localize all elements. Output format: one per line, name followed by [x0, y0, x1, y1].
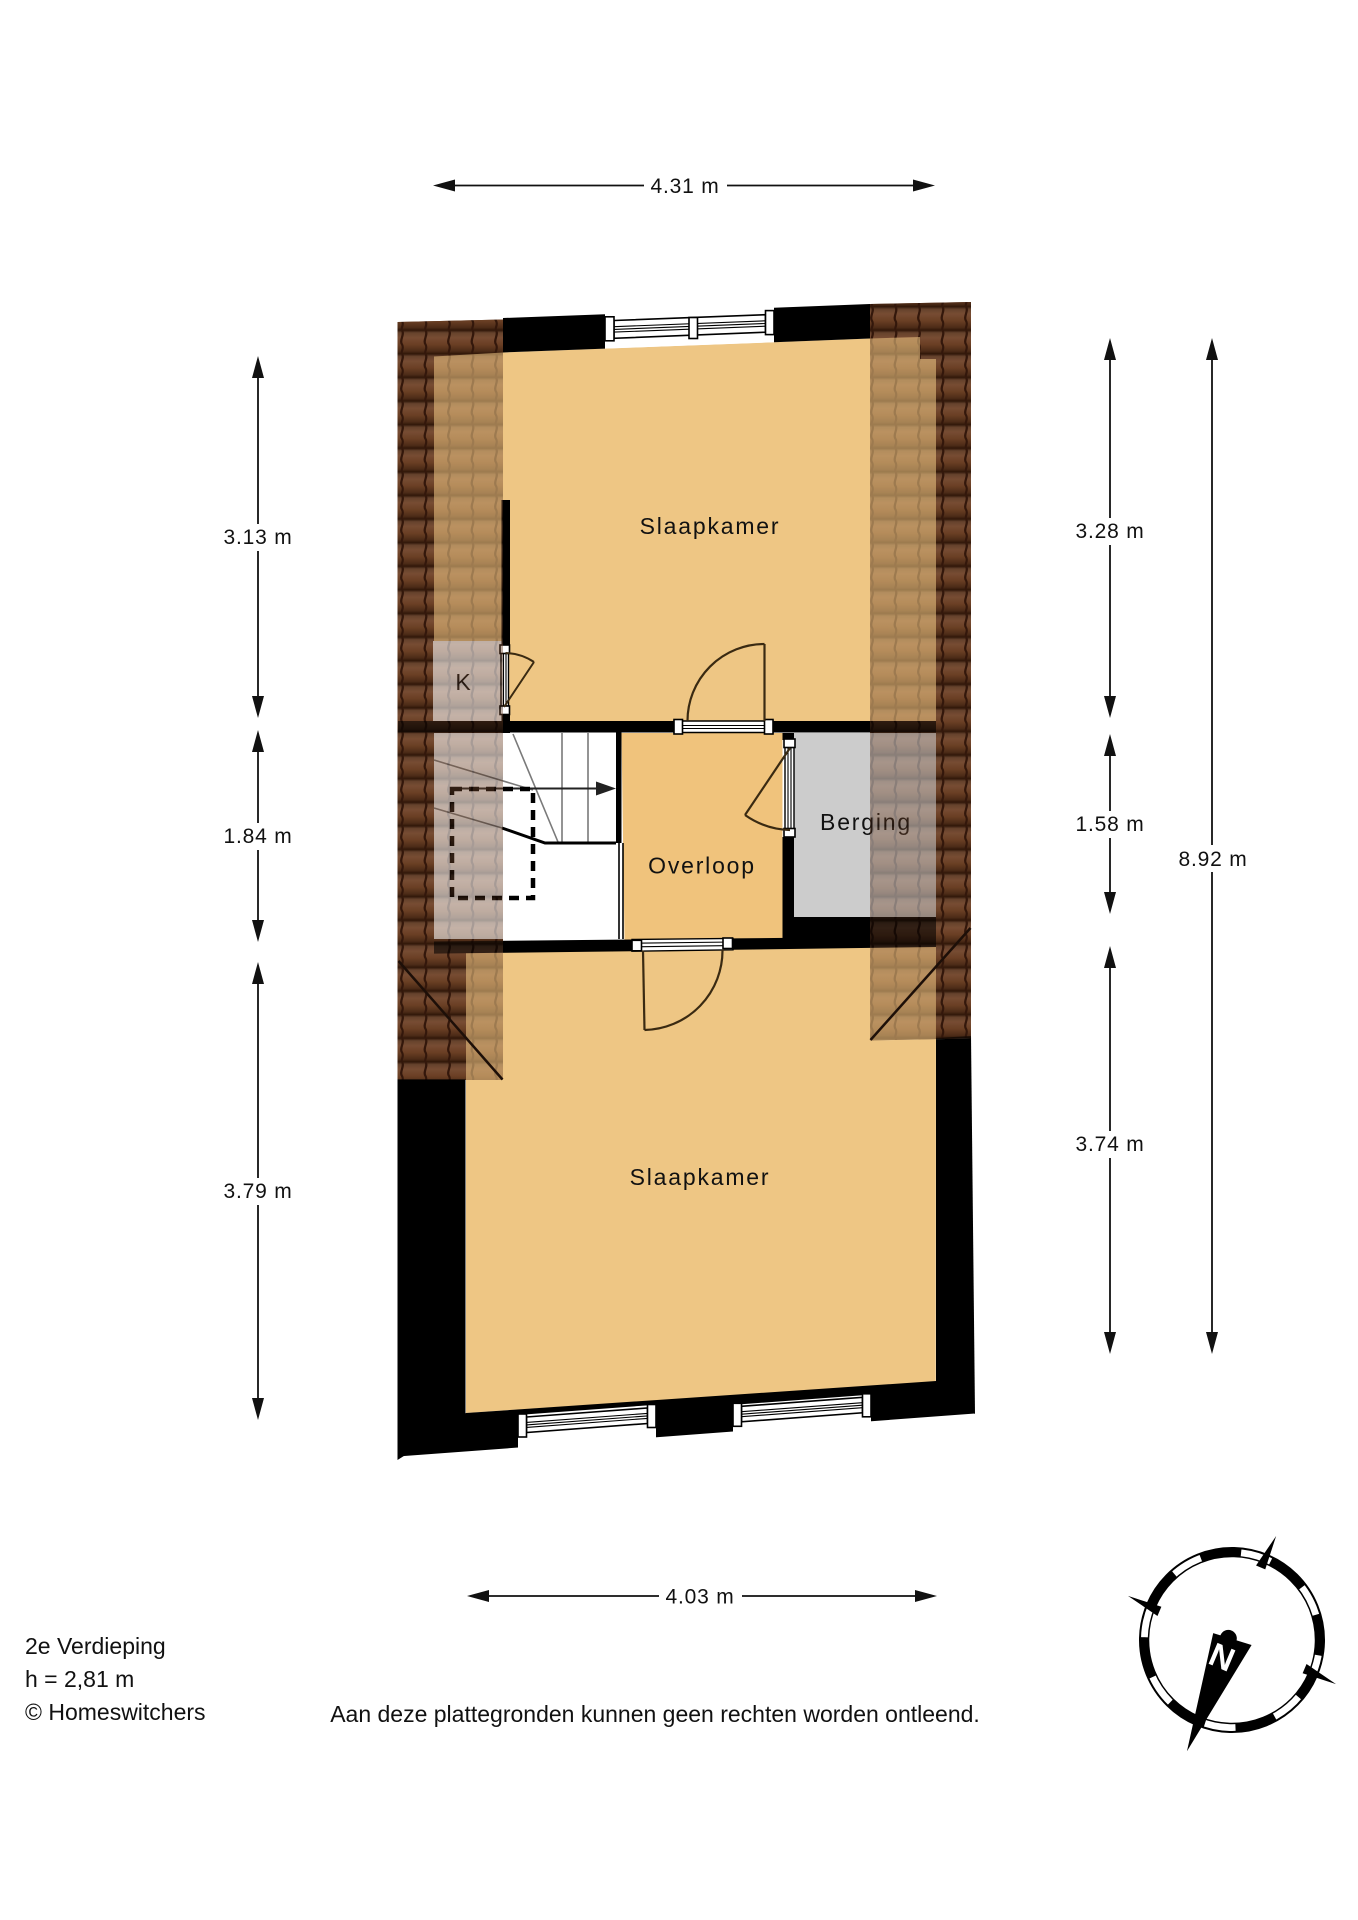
svg-text:3.74 m: 3.74 m: [1076, 1133, 1145, 1156]
svg-text:4.31 m: 4.31 m: [651, 175, 720, 198]
svg-text:2e Verdieping: 2e Verdieping: [25, 1633, 166, 1659]
svg-text:1.84 m: 1.84 m: [224, 825, 293, 848]
svg-text:3.28 m: 3.28 m: [1076, 520, 1145, 543]
svg-text:3.79 m: 3.79 m: [224, 1180, 293, 1203]
svg-text:4.03 m: 4.03 m: [666, 1586, 735, 1609]
svg-text:h = 2,81 m: h = 2,81 m: [25, 1666, 134, 1692]
svg-text:Aan deze plattegronden kunnen: Aan deze plattegronden kunnen geen recht…: [330, 1701, 980, 1727]
svg-text:1.58 m: 1.58 m: [1076, 813, 1145, 836]
svg-text:3.13 m: 3.13 m: [224, 526, 293, 549]
svg-text:8.92 m: 8.92 m: [1179, 848, 1248, 871]
svg-text:© Homeswitchers: © Homeswitchers: [25, 1699, 206, 1725]
